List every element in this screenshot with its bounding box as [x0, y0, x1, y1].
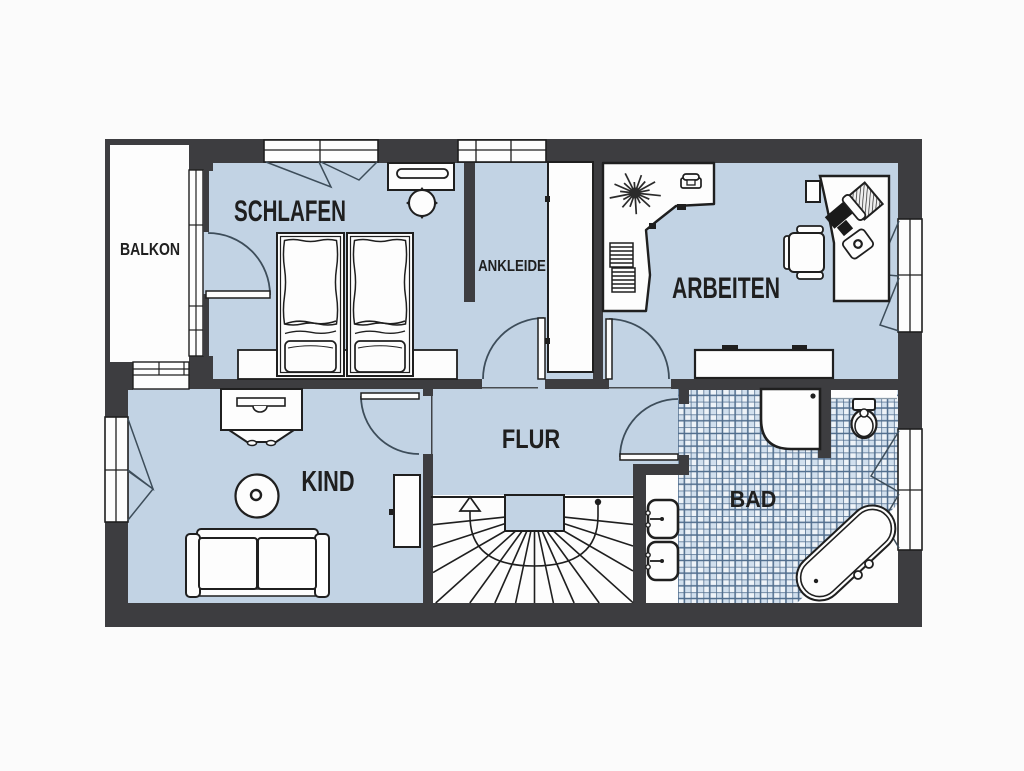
svg-text:ANKLEIDE: ANKLEIDE	[478, 258, 546, 275]
svg-text:ARBEITEN: ARBEITEN	[672, 273, 780, 305]
svg-text:FLUR: FLUR	[502, 425, 560, 455]
svg-text:BAD: BAD	[730, 486, 777, 512]
svg-text:BALKON: BALKON	[120, 239, 180, 259]
svg-text:KIND: KIND	[301, 466, 354, 498]
svg-text:SCHLAFEN: SCHLAFEN	[234, 195, 346, 228]
